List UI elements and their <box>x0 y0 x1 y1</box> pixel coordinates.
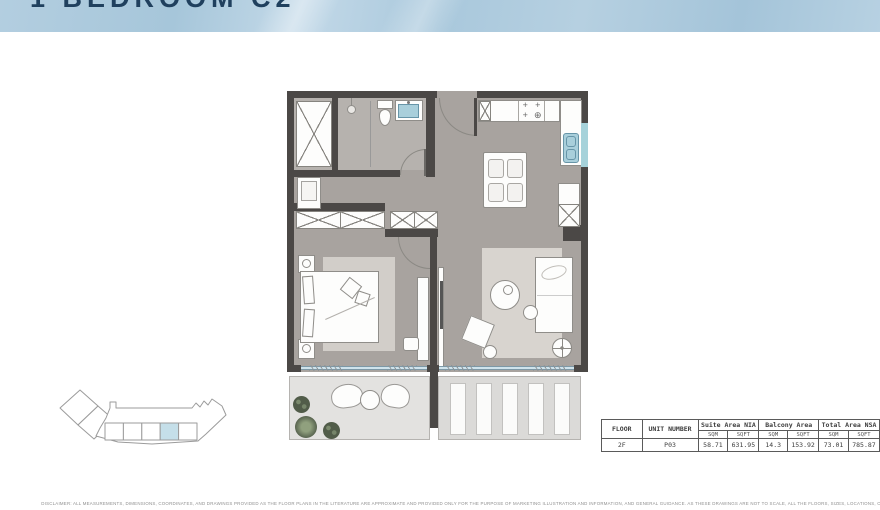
key-plan-unit <box>179 423 197 440</box>
balcony-slat <box>554 383 570 435</box>
table-header-balcony: Balcony Area <box>759 420 819 431</box>
kitchen-window <box>581 123 588 167</box>
cell-total-sqm: 73.01 <box>819 439 849 452</box>
pouf <box>483 345 497 359</box>
key-plan-unit <box>142 423 160 440</box>
nightstand-lamp <box>302 344 311 353</box>
table-header-unit-number: UNIT NUMBER <box>642 420 698 439</box>
side-table <box>523 305 538 320</box>
table-subheader-sqm: SQM <box>819 431 849 439</box>
wardrobe-bedroom <box>296 211 385 229</box>
disclaimer-text: DISCLAIMER: ALL MEASUREMENTS, DIMENSIONS… <box>41 501 839 506</box>
bed <box>300 271 379 343</box>
slider-stub <box>574 365 588 372</box>
plant <box>295 416 317 438</box>
cell-floor: 2F <box>602 439 643 452</box>
entry-door-leaf <box>474 98 477 136</box>
dining-chair <box>488 159 504 178</box>
fridge <box>558 183 580 205</box>
door-hatch <box>445 365 475 371</box>
table-header-floor: FLOOR <box>602 420 643 439</box>
table-subheader-sqft: SQFT <box>728 431 759 439</box>
plant <box>293 396 310 413</box>
balcony-slat <box>476 383 492 435</box>
wall-top-right <box>477 91 588 98</box>
shower-screen <box>370 101 371 167</box>
pillow <box>302 309 315 338</box>
header-band: 1 BEDROOM C2 <box>0 0 880 32</box>
stove-burners: +++⊕ <box>519 101 544 121</box>
cell-suite-sqft: 631.95 <box>728 439 759 452</box>
kitchen-counter: +++⊕ <box>478 100 560 122</box>
table-subheader-sqm: SQM <box>759 431 788 439</box>
wardrobe-cell <box>296 211 341 229</box>
door-hatch <box>309 365 343 371</box>
cell-total-sqft: 785.87 <box>848 439 879 452</box>
floor-lamp <box>552 338 572 358</box>
wardrobe-hall <box>390 211 438 229</box>
kitchen-sink <box>563 133 579 163</box>
plant <box>323 422 340 439</box>
wall-below-wardrobe <box>385 229 438 237</box>
bathroom-sink <box>398 104 419 118</box>
wall-bedroom-living <box>430 237 437 365</box>
sofa <box>535 257 573 333</box>
table-subheader-sqft: SQFT <box>848 431 879 439</box>
bedroom-door-arc <box>398 237 430 269</box>
balcony-right-floor <box>438 376 581 440</box>
wall-left <box>287 91 294 365</box>
entry-door-arc <box>439 98 477 136</box>
key-plan <box>52 386 232 458</box>
key-plan-unit <box>123 423 141 440</box>
dining-chair <box>488 183 504 202</box>
shower-closet <box>296 101 332 167</box>
table-row: 2F P03 58.71 631.95 14.3 153.92 73.01 78… <box>602 439 880 452</box>
key-plan-drawing <box>52 386 232 458</box>
kitchen-cabinet <box>479 101 491 121</box>
key-plan-unit-highlighted <box>160 423 178 440</box>
key-plan-unit <box>105 423 123 440</box>
wardrobe-cell <box>414 211 438 229</box>
sink-bowl <box>566 149 576 160</box>
outdoor-table <box>360 390 380 410</box>
sink-faucet <box>407 101 410 104</box>
table-header-total: Total Area NSA <box>819 420 880 431</box>
coffee-table-inner <box>503 285 513 295</box>
bathroom-door-leaf <box>424 149 426 176</box>
cell-unit-number: P03 <box>642 439 698 452</box>
nightstand-lamp <box>302 259 311 268</box>
door-hatch <box>533 365 567 371</box>
shower-head <box>347 105 356 114</box>
wall-top-left <box>287 91 437 98</box>
wall-bath-right <box>426 98 435 177</box>
sofa-figure <box>540 263 569 283</box>
table-header-suite: Suite Area NIA <box>698 420 759 431</box>
balcony-slat <box>450 383 466 435</box>
dining-chair <box>507 159 523 178</box>
wardrobe-cell <box>390 211 415 229</box>
pantry-cabinet <box>558 204 580 227</box>
wall-bath-closet <box>332 98 338 171</box>
slider-stub <box>427 365 439 372</box>
cell-suite-sqm: 58.71 <box>698 439 728 452</box>
balcony-slat <box>528 383 544 435</box>
balcony <box>287 372 588 447</box>
washer-drum <box>301 181 317 201</box>
table-subheader-sqft: SQFT <box>788 431 819 439</box>
cell-balcony-sqm: 14.3 <box>759 439 788 452</box>
slider-stub <box>287 365 301 372</box>
wall-kitchen-jog <box>563 225 588 241</box>
door-hatch <box>387 365 417 371</box>
stove: +++⊕ <box>518 101 545 121</box>
wardrobe-cell <box>340 211 385 229</box>
dining-table <box>483 152 527 208</box>
wall-bath-bottom <box>294 170 400 177</box>
balcony-divider <box>430 372 438 428</box>
shower-arm <box>351 98 352 106</box>
balcony-slat <box>502 383 518 435</box>
pillow <box>302 276 315 305</box>
bedroom-stool <box>403 337 419 351</box>
page-title: 1 BEDROOM C2 <box>30 0 296 12</box>
cell-balcony-sqft: 153.92 <box>788 439 819 452</box>
blanket-fold <box>325 297 375 320</box>
area-table: FLOOR UNIT NUMBER Suite Area NIA Balcony… <box>601 419 880 452</box>
sofa-seam <box>537 295 572 296</box>
toilet-tank <box>377 100 393 109</box>
sink-bowl <box>566 136 576 147</box>
tv-screen <box>440 281 443 329</box>
floor-plan: +++⊕ <box>287 91 588 372</box>
dining-chair <box>507 183 523 202</box>
table-subheader-sqm: SQM <box>698 431 728 439</box>
